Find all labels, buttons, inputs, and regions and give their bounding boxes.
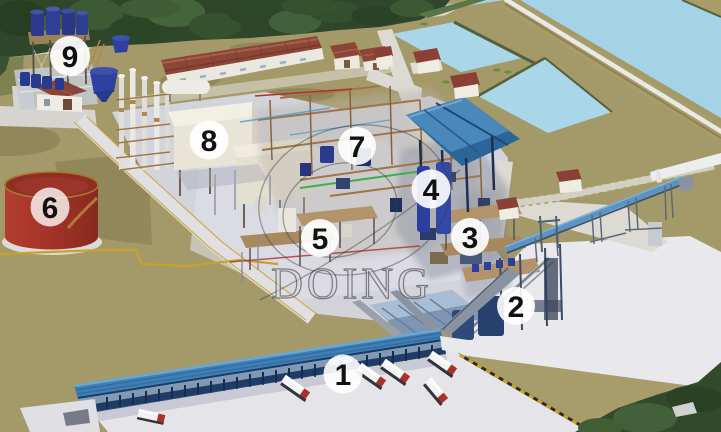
- svg-text:6: 6: [42, 192, 59, 225]
- svg-text:9: 9: [62, 41, 79, 74]
- svg-text:4: 4: [423, 174, 440, 207]
- svg-text:DOING: DOING: [271, 259, 433, 308]
- svg-text:2: 2: [508, 291, 525, 324]
- svg-text:7: 7: [349, 131, 366, 164]
- svg-text:3: 3: [462, 222, 479, 255]
- svg-text:8: 8: [201, 125, 218, 158]
- svg-text:5: 5: [312, 223, 329, 256]
- svg-text:1: 1: [335, 359, 352, 392]
